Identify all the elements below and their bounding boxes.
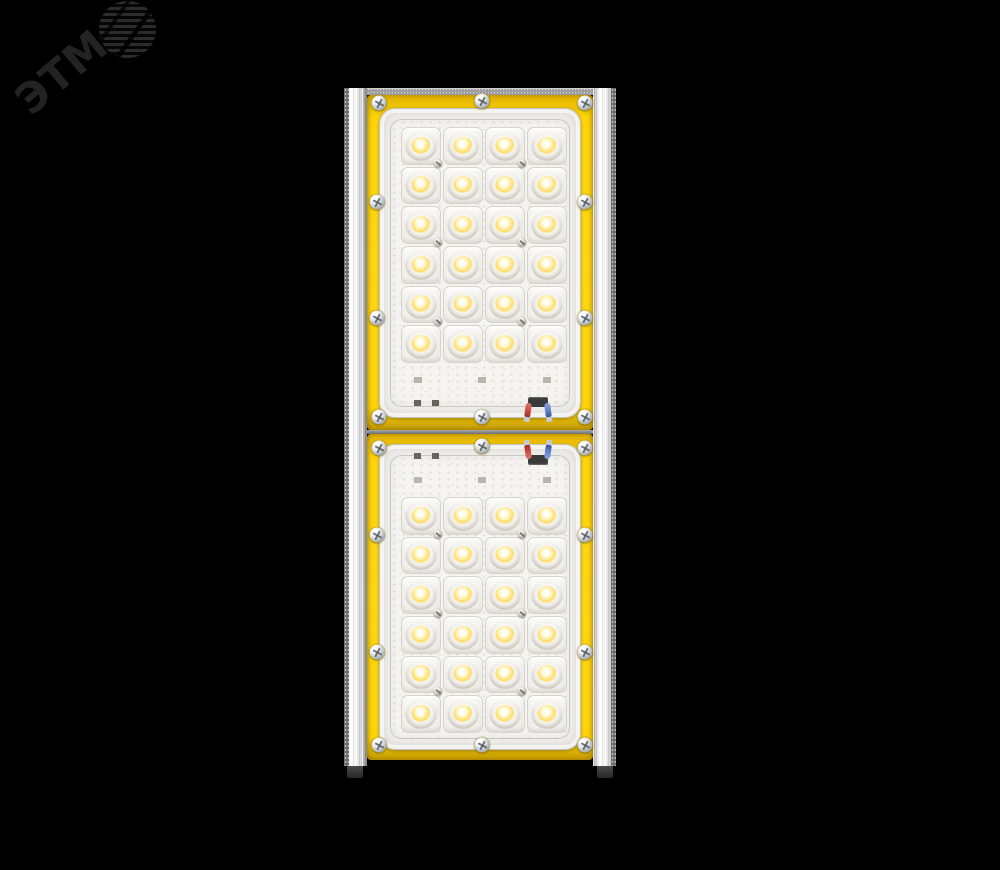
led-lens-cell [443,616,483,654]
led-lens-cell [527,576,567,614]
frame-screw [372,96,387,111]
watermark: ЭТМ [0,0,210,170]
led-lens-cell [443,695,483,733]
pcb-screw [434,317,443,326]
led-lens-cell [443,167,483,205]
red-wire [524,444,532,460]
led-lens-cell [485,695,525,733]
pcb-screw [518,687,527,696]
led-lens-cell [527,206,567,244]
led-lens-cell [443,576,483,614]
led-lens-cell [527,497,567,535]
lens-plate [379,108,581,418]
frame-screw [578,96,593,111]
led-lens-cell [527,167,567,205]
led-lens-cell [527,286,567,324]
led-grid [401,127,567,363]
led-lens-cell [527,537,567,575]
pcb-screw [518,317,527,326]
pcb-screw [518,530,527,539]
blue-wire [544,444,552,460]
led-lens-cell [401,537,441,575]
frame-screw [578,528,593,543]
smd-components [380,477,580,483]
pcb-screw [434,530,443,539]
frame-screw [578,738,593,753]
blue-wire [544,403,552,419]
smd-components [380,377,580,383]
led-lens-cell [443,127,483,165]
led-lens-cell [443,497,483,535]
led-lens-cell [443,656,483,694]
led-grid [401,497,567,733]
led-lens-cell [443,537,483,575]
frame-screw [475,94,490,109]
led-lens-cell [527,695,567,733]
led-lens-cell [485,537,525,575]
led-lens-cell [443,286,483,324]
led-lens-cell [527,246,567,284]
mount-foot-right [597,766,613,778]
led-lens-cell [443,206,483,244]
frame-screw [578,441,593,456]
led-lens-cell [527,325,567,363]
red-wire [524,403,532,419]
pcb-screw [434,609,443,618]
wire-connector [525,441,551,467]
lens-plate [379,444,581,750]
led-lens-cell [443,246,483,284]
wire-connector [525,395,551,421]
led-lens-cell [485,616,525,654]
frame-screw [578,410,593,425]
frame-screw [475,738,490,753]
led-module-top [367,95,593,430]
pcb-screw [434,687,443,696]
frame-screw [370,528,385,543]
led-lens-cell [401,325,441,363]
led-module-bottom [367,434,593,760]
frame-screw [475,410,490,425]
product-photo-canvas: ЭТМ [0,0,1000,870]
mount-foot-left [347,766,363,778]
frame-screw [475,439,490,454]
pcb-screw [518,609,527,618]
frame-screw [578,311,593,326]
pcb-screw [434,238,443,247]
led-lens-cell [527,616,567,654]
heatsink-rail-left [344,88,367,766]
led-lens-cell [527,127,567,165]
pcb-screw [518,238,527,247]
frame-screw [370,645,385,660]
led-lens-cell [485,167,525,205]
led-floodlight [344,88,616,778]
striped-globe-icon [99,1,156,58]
frame-screw [370,311,385,326]
led-lens-cell [485,325,525,363]
frame-screw [372,738,387,753]
frame-screw [372,410,387,425]
led-lens-cell [401,695,441,733]
frame-screw [578,195,593,210]
frame-screw [370,195,385,210]
led-lens-cell [527,656,567,694]
frame-screw [578,645,593,660]
frame-screw [372,441,387,456]
pcb-screw [518,159,527,168]
heatsink-rail-right [593,88,616,766]
led-lens-cell [443,325,483,363]
pcb-screw [434,159,443,168]
led-lens-cell [401,246,441,284]
led-lens-cell [485,246,525,284]
led-lens-cell [401,616,441,654]
led-lens-cell [401,167,441,205]
